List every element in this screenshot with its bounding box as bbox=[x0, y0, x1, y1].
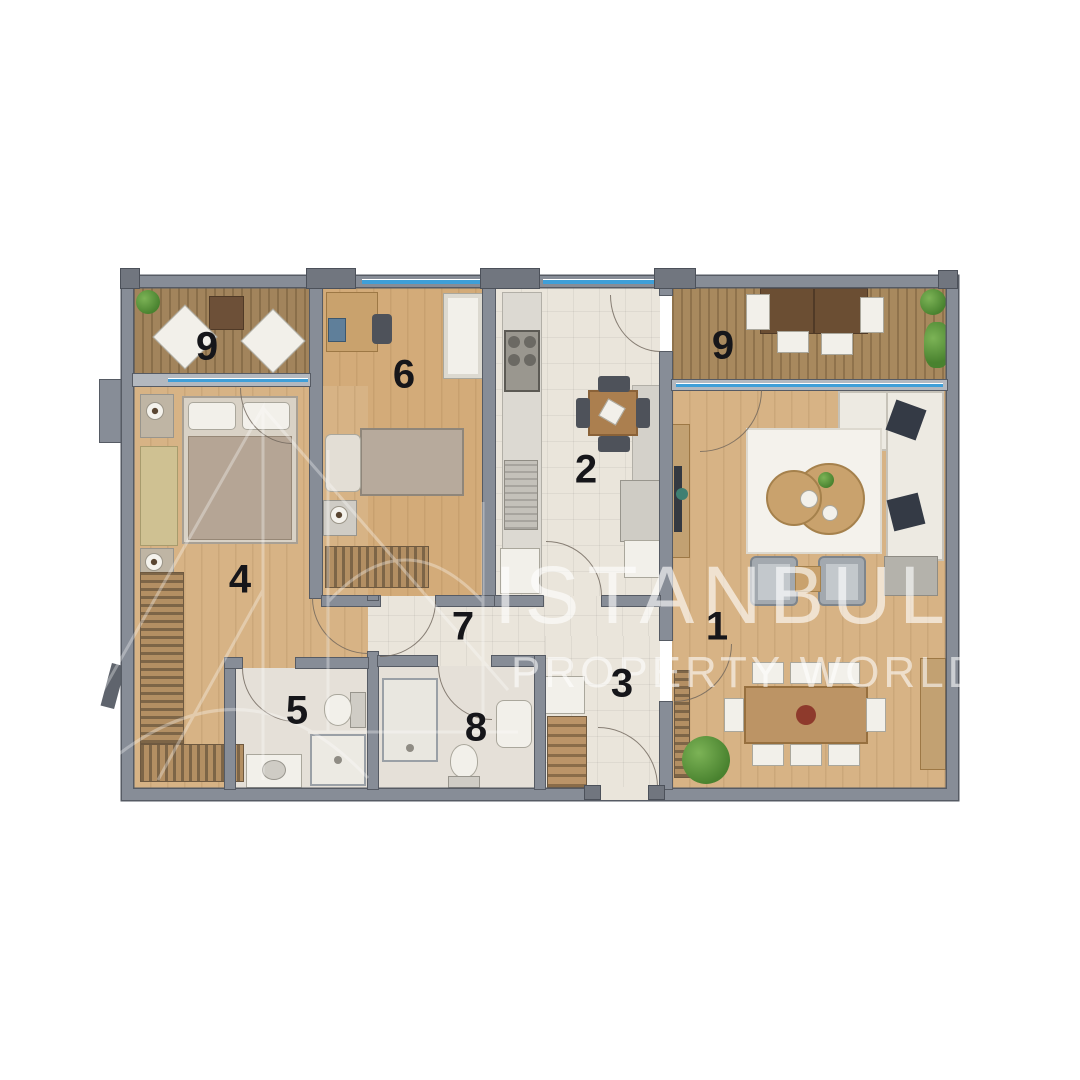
room-label-hallway: 7 bbox=[452, 605, 474, 650]
window bbox=[362, 279, 480, 284]
room-label-living-room: 1 bbox=[706, 605, 728, 650]
wall bbox=[660, 702, 672, 789]
column bbox=[584, 785, 601, 800]
room-label-bathroom: 8 bbox=[465, 706, 487, 751]
watermark-subtitle: PROPERTY WORLD bbox=[511, 648, 983, 698]
column bbox=[120, 268, 140, 289]
room-label-balcony-left: 9 bbox=[196, 325, 218, 370]
room-label-balcony-right: 9 bbox=[712, 324, 734, 369]
window bbox=[543, 279, 657, 284]
column bbox=[648, 785, 665, 800]
floor-plan: ISTANBUL PROPERTY WORLD 9 6 2 9 1 4 7 3 … bbox=[0, 0, 1080, 1080]
column bbox=[306, 268, 356, 289]
window bbox=[676, 383, 943, 387]
room-label-kitchen: 2 bbox=[575, 448, 597, 493]
room-label-bedroom-master: 4 bbox=[229, 558, 251, 603]
room-label-bathroom-ensuite: 5 bbox=[286, 689, 308, 734]
room-label-bedroom-child: 6 bbox=[393, 353, 415, 398]
column bbox=[654, 268, 696, 289]
room-label-entry-hall: 3 bbox=[611, 662, 633, 707]
column bbox=[938, 270, 958, 289]
column bbox=[480, 268, 540, 289]
